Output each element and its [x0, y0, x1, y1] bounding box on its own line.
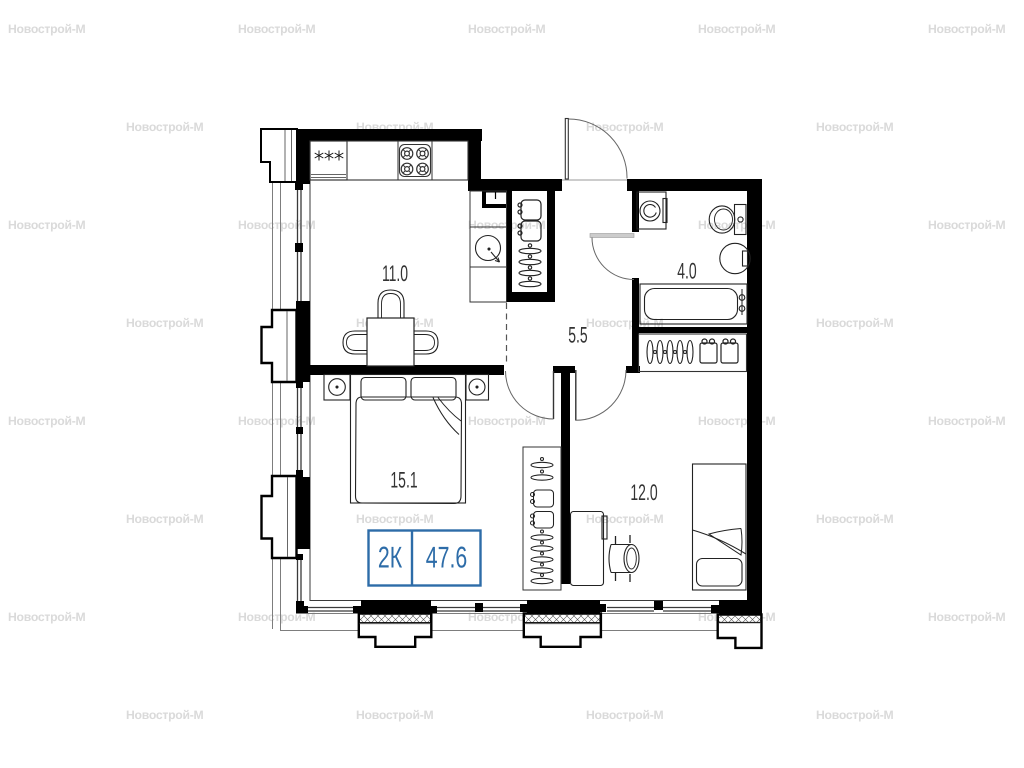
svg-text:15.1: 15.1: [390, 468, 417, 493]
svg-text:Новострой-М: Новострой-М: [238, 218, 316, 232]
svg-text:Новострой-М: Новострой-М: [356, 708, 434, 722]
svg-text:Новострой-М: Новострой-М: [816, 708, 894, 722]
svg-text:Новострой-М: Новострой-М: [8, 610, 86, 624]
svg-text:Новострой-М: Новострой-М: [126, 708, 204, 722]
svg-text:Новострой-М: Новострой-М: [8, 22, 86, 36]
svg-text:Новострой-М: Новострой-М: [586, 708, 664, 722]
svg-text:Новострой-М: Новострой-М: [126, 120, 204, 134]
svg-text:Новострой-М: Новострой-М: [468, 22, 546, 36]
svg-text:Новострой-М: Новострой-М: [468, 414, 546, 428]
svg-text:Новострой-М: Новострой-М: [8, 218, 86, 232]
svg-text:Новострой-М: Новострой-М: [356, 512, 434, 526]
svg-text:Новострой-М: Новострой-М: [928, 610, 1006, 624]
svg-text:Новострой-М: Новострой-М: [126, 512, 204, 526]
svg-text:Новострой-М: Новострой-М: [816, 512, 894, 526]
svg-text:47.6: 47.6: [426, 542, 467, 575]
svg-text:12.0: 12.0: [630, 480, 657, 505]
svg-text:5.5: 5.5: [568, 323, 587, 348]
svg-text:Новострой-М: Новострой-М: [126, 316, 204, 330]
svg-text:11.0: 11.0: [382, 261, 408, 286]
svg-text:Новострой-М: Новострой-М: [816, 316, 894, 330]
svg-text:Новострой-М: Новострой-М: [586, 512, 664, 526]
svg-text:2К: 2К: [378, 542, 403, 575]
svg-text:Новострой-М: Новострой-М: [238, 22, 316, 36]
svg-text:Новострой-М: Новострой-М: [8, 414, 86, 428]
svg-text:4.0: 4.0: [677, 259, 696, 284]
svg-text:Новострой-М: Новострой-М: [238, 414, 316, 428]
svg-text:Новострой-М: Новострой-М: [816, 120, 894, 134]
svg-text:Новострой-М: Новострой-М: [698, 22, 776, 36]
svg-text:Новострой-М: Новострой-М: [698, 414, 776, 428]
svg-text:Новострой-М: Новострой-М: [928, 22, 1006, 36]
svg-text:Новострой-М: Новострой-М: [928, 414, 1006, 428]
svg-text:Новострой-М: Новострой-М: [928, 218, 1006, 232]
